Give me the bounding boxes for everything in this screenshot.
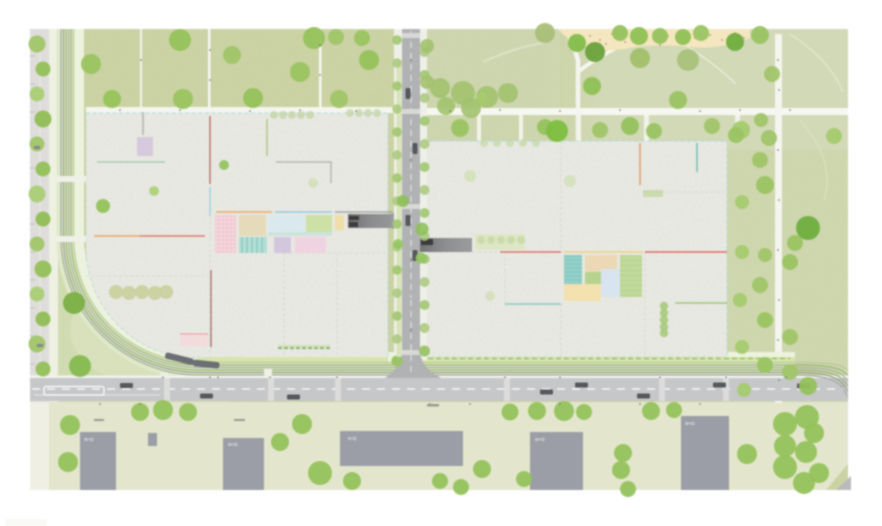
svg-text:III+D: III+D [535, 437, 545, 442]
svg-text:III+D: III+D [84, 437, 94, 442]
svg-text:II+D: II+D [348, 436, 357, 441]
svg-text:III+D: III+D [685, 421, 695, 426]
svg-text:III+D: III+D [228, 442, 238, 447]
